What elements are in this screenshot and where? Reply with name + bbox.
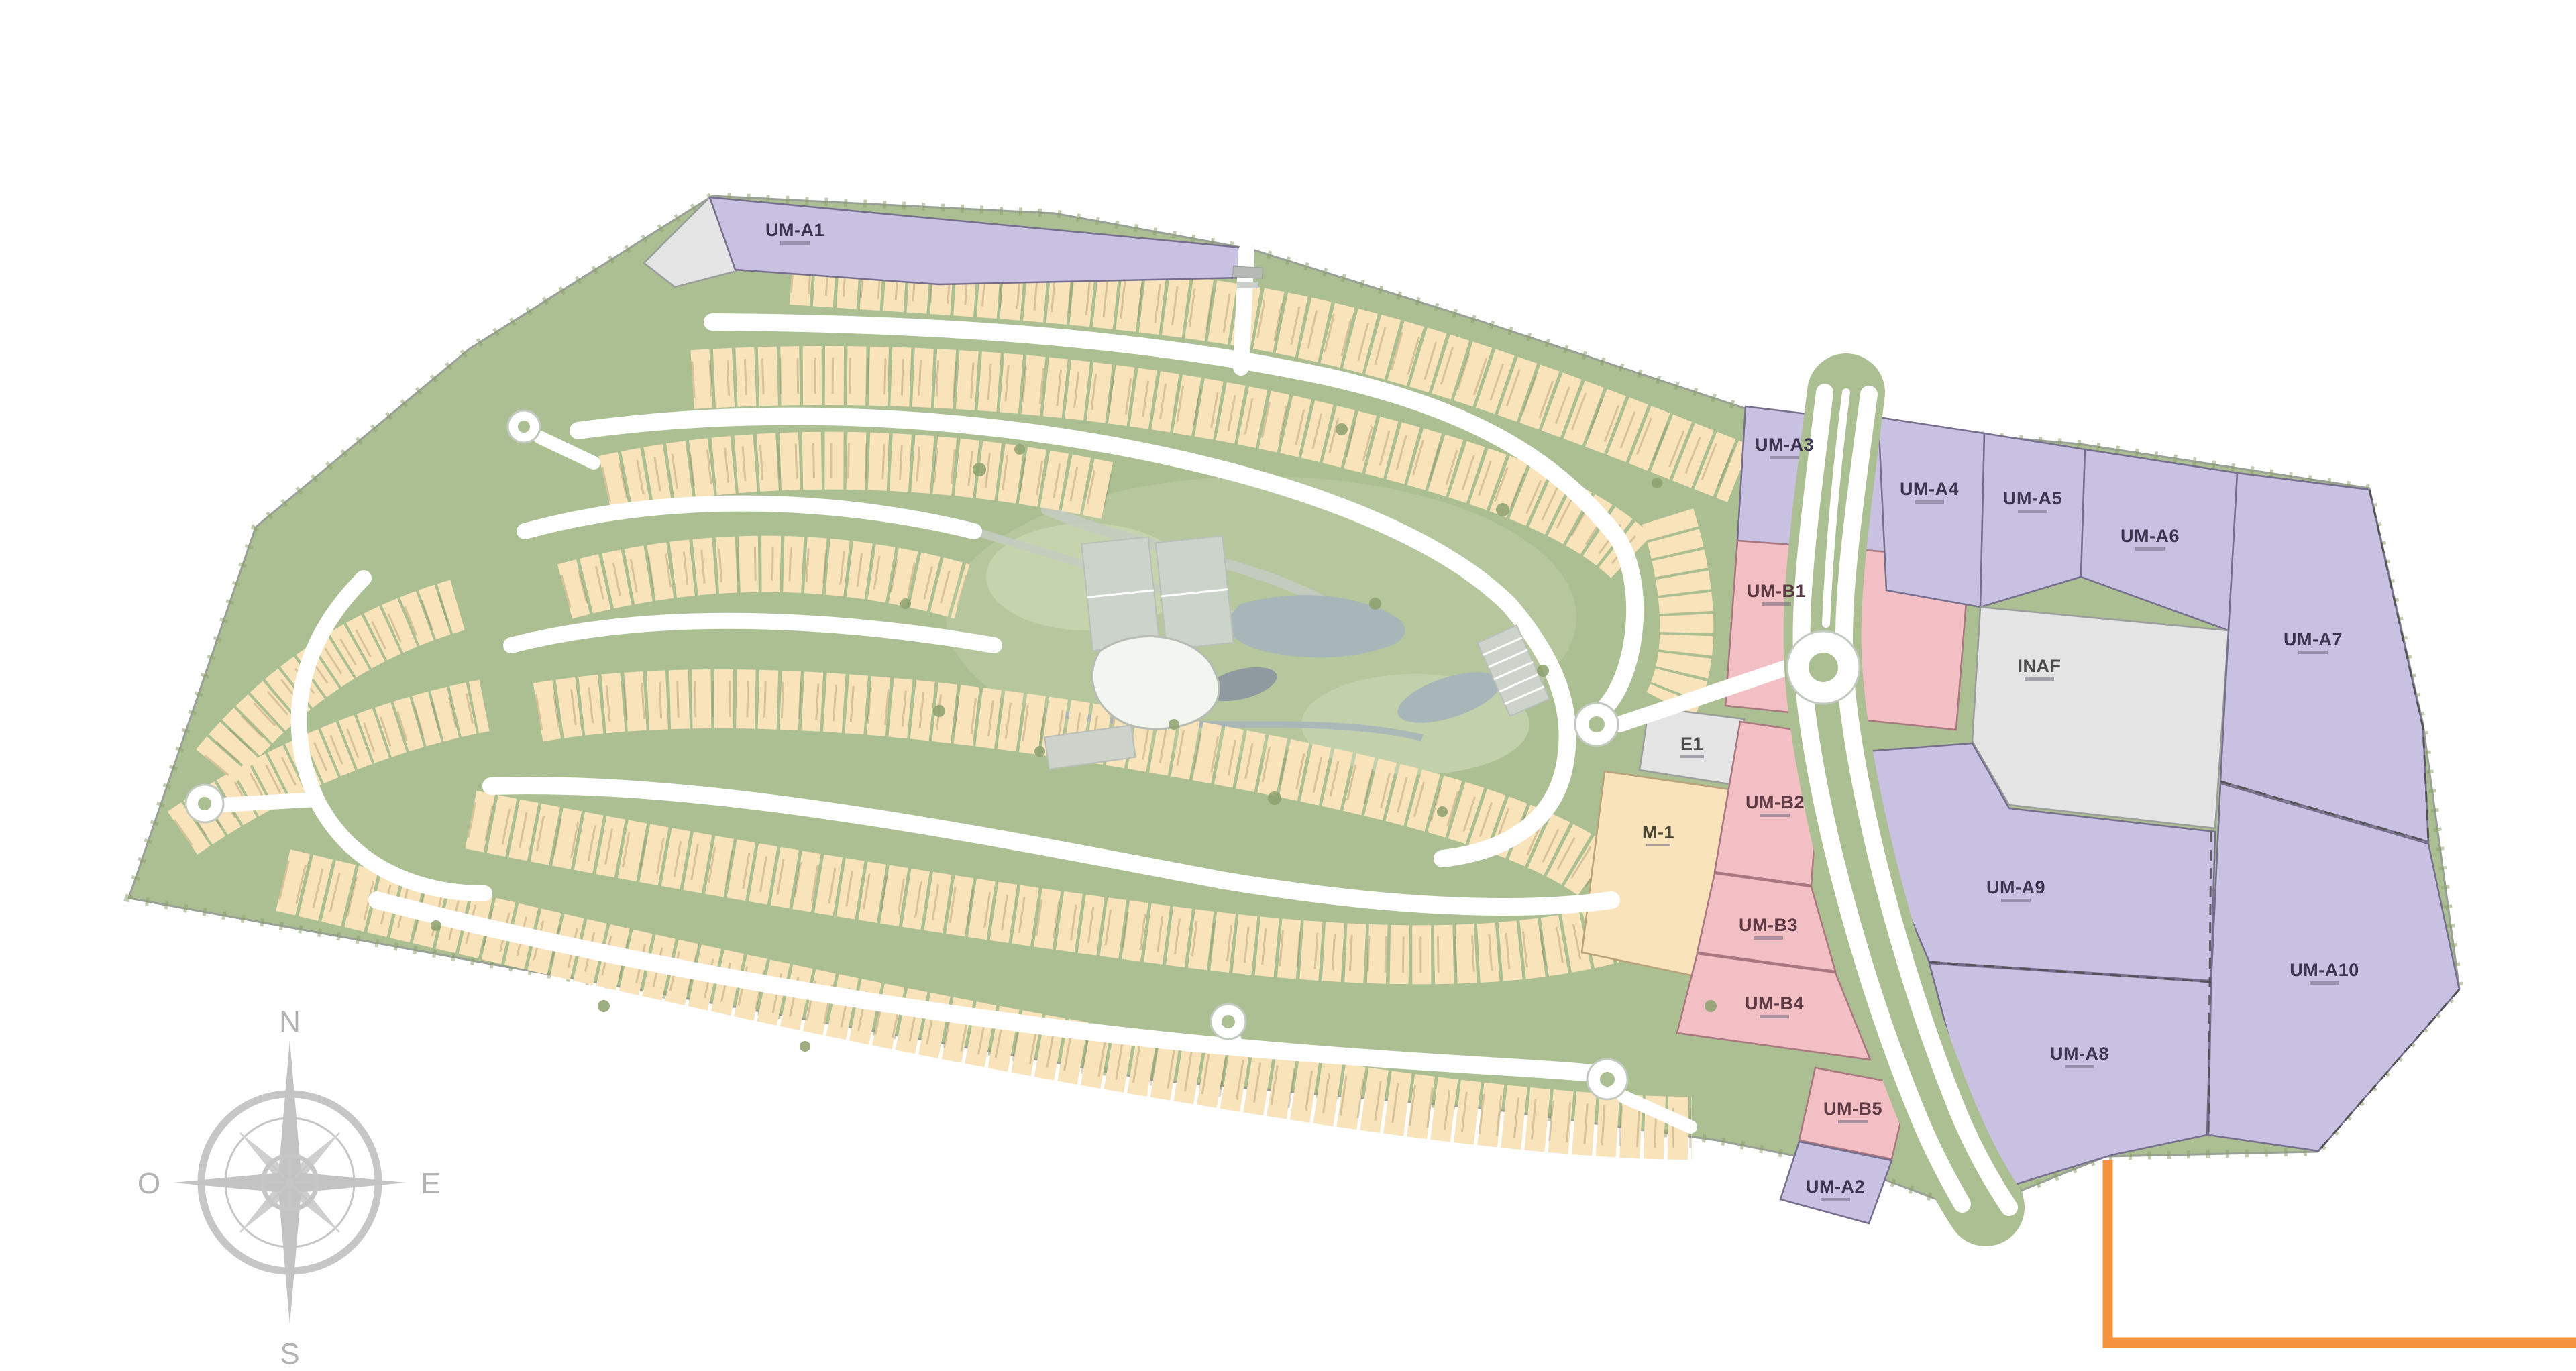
parcel-label: UM-A4	[1900, 479, 1959, 499]
parcel-label: UM-A3	[1755, 435, 1814, 455]
parcel-label: UM-B2	[1746, 792, 1805, 812]
parcel-label: UM-A6	[2121, 526, 2180, 546]
cul-de-sac-island	[518, 421, 530, 433]
parcel-inaf[interactable]	[1972, 607, 2229, 828]
lot-band	[565, 564, 962, 592]
area-text	[780, 241, 810, 245]
compass-label-south: S	[280, 1337, 299, 1370]
cul-de-sac-island	[198, 797, 211, 810]
road-stub	[223, 800, 317, 805]
parcel-label: UM-B4	[1745, 993, 1804, 1013]
entrance-gate	[1233, 266, 1263, 288]
area-text	[1838, 1120, 1868, 1123]
parcel-label: UM-A8	[2050, 1044, 2109, 1064]
area-text	[2018, 510, 2047, 513]
area-text	[1915, 500, 1944, 504]
roundabout-island	[1600, 1072, 1615, 1087]
parcel-label: UM-B1	[1747, 581, 1806, 601]
parcel-um-a4[interactable]	[1878, 417, 1984, 607]
area-text	[1770, 456, 1799, 459]
area-text	[1754, 936, 1783, 940]
compass-label-north: N	[279, 1005, 301, 1038]
area-text	[2310, 981, 2339, 985]
area-text	[2065, 1065, 2094, 1068]
parcel-label: INAF	[2018, 656, 2061, 676]
area-text	[1821, 1198, 1850, 1201]
parcel-label: UM-A9	[1986, 877, 2045, 897]
compass-label-west: O	[138, 1167, 160, 1200]
area-text	[2135, 547, 2165, 551]
parcel-label: UM-A10	[2290, 960, 2359, 980]
parcel-label: UM-A2	[1806, 1176, 1865, 1197]
area-text	[2001, 899, 2031, 902]
parcel-label: UM-B5	[1823, 1099, 1882, 1119]
compass-rose: N S E O	[138, 1005, 441, 1370]
roundabout-island	[1589, 716, 1605, 732]
parcel-label: M-1	[1642, 822, 1674, 842]
orange-boundary	[2108, 1160, 2576, 1343]
area-text	[1680, 755, 1704, 758]
area-text	[1760, 1015, 1789, 1018]
lot-band	[605, 461, 1108, 491]
area-text	[2025, 677, 2054, 681]
parcel-label: UM-A1	[765, 220, 824, 240]
site-plan-svg: UM-A1 UM-A3 UM-B1 E1 M-1 UM-B2 UM-B3 UM-…	[0, 0, 2576, 1371]
master-plan-canvas: UM-A1 UM-A3 UM-B1 E1 M-1 UM-B2 UM-B3 UM-…	[0, 0, 2576, 1371]
parcel-label: E1	[1680, 734, 1703, 754]
parcel-label: UM-B3	[1739, 915, 1798, 935]
parcel-um-a5[interactable]	[1980, 433, 2085, 607]
parcel-label: UM-A5	[2003, 488, 2062, 508]
area-text	[1646, 844, 1670, 846]
parcel-um-a7[interactable]	[2220, 473, 2428, 842]
roundabout-island	[1809, 653, 1838, 682]
lot-band	[1668, 516, 1686, 704]
compass-center-dot	[285, 1178, 294, 1187]
parcel-label: UM-A7	[2284, 629, 2343, 649]
area-text	[1762, 602, 1791, 606]
area-text	[1760, 814, 1790, 817]
cul-de-sac-island	[1222, 1015, 1235, 1028]
area-text	[2298, 651, 2328, 654]
compass-label-east: E	[421, 1167, 440, 1200]
